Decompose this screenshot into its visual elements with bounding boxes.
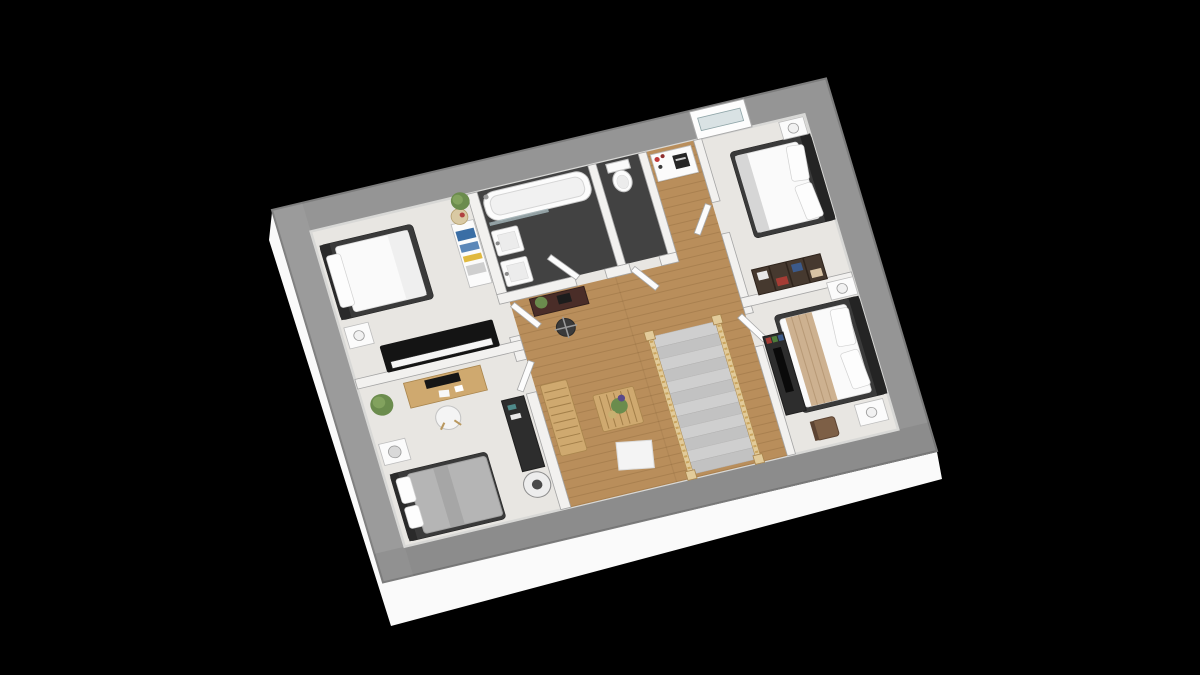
white-floor-mat [616,440,654,470]
floor-plan-scene [0,0,1200,675]
paper-1 [439,390,450,398]
newel-post-sw [685,470,697,481]
newel-post-se [753,454,765,465]
wall-bedroom4-east-a [514,350,527,362]
newel-post-ne [711,314,723,325]
wall-bedroom3-west-a [743,306,753,315]
floor-plan-svg [0,0,1200,675]
newel-post-nw [644,330,656,341]
